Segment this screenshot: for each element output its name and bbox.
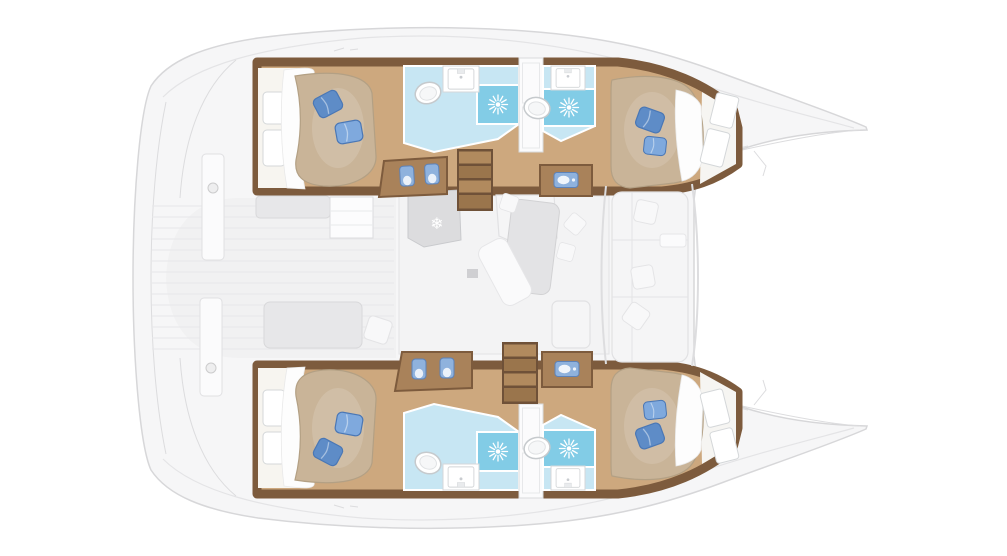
dinette-seat (552, 301, 590, 348)
sofa-armrest (660, 234, 686, 247)
bow-gunwale-lines (742, 130, 860, 426)
starboard-hull-interior (257, 365, 739, 498)
blue-basin (555, 362, 579, 377)
cockpit-bench-aft-top (256, 196, 330, 218)
forward-cockpit (602, 184, 699, 366)
blue-stool (412, 359, 426, 379)
floor-hatch (467, 269, 478, 278)
starboard-entry-counter (395, 352, 472, 391)
catamaran-floorplan: ❄ (0, 0, 1007, 556)
blue-basin (554, 173, 578, 188)
cockpit-bench-aft-bottom (264, 302, 362, 348)
white-pillow (630, 264, 655, 289)
blue-stool (424, 164, 439, 185)
cockpit-cabinet (330, 197, 373, 238)
blue-stool (440, 358, 454, 378)
fridge-snowflake-icon: ❄ (430, 214, 443, 233)
stairs-port (457, 149, 493, 211)
white-pillow (633, 199, 659, 225)
port-hull-interior (257, 58, 739, 191)
davit-post-port (202, 154, 224, 260)
bow-bracket-lines (754, 151, 766, 405)
davit-fitting (206, 363, 216, 373)
davit-fitting (208, 183, 218, 193)
blue-stool (399, 166, 414, 187)
floorplan-canvas: ❄ (0, 0, 1007, 556)
davit-post-starboard (200, 298, 222, 396)
stairs-starboard (502, 342, 538, 404)
